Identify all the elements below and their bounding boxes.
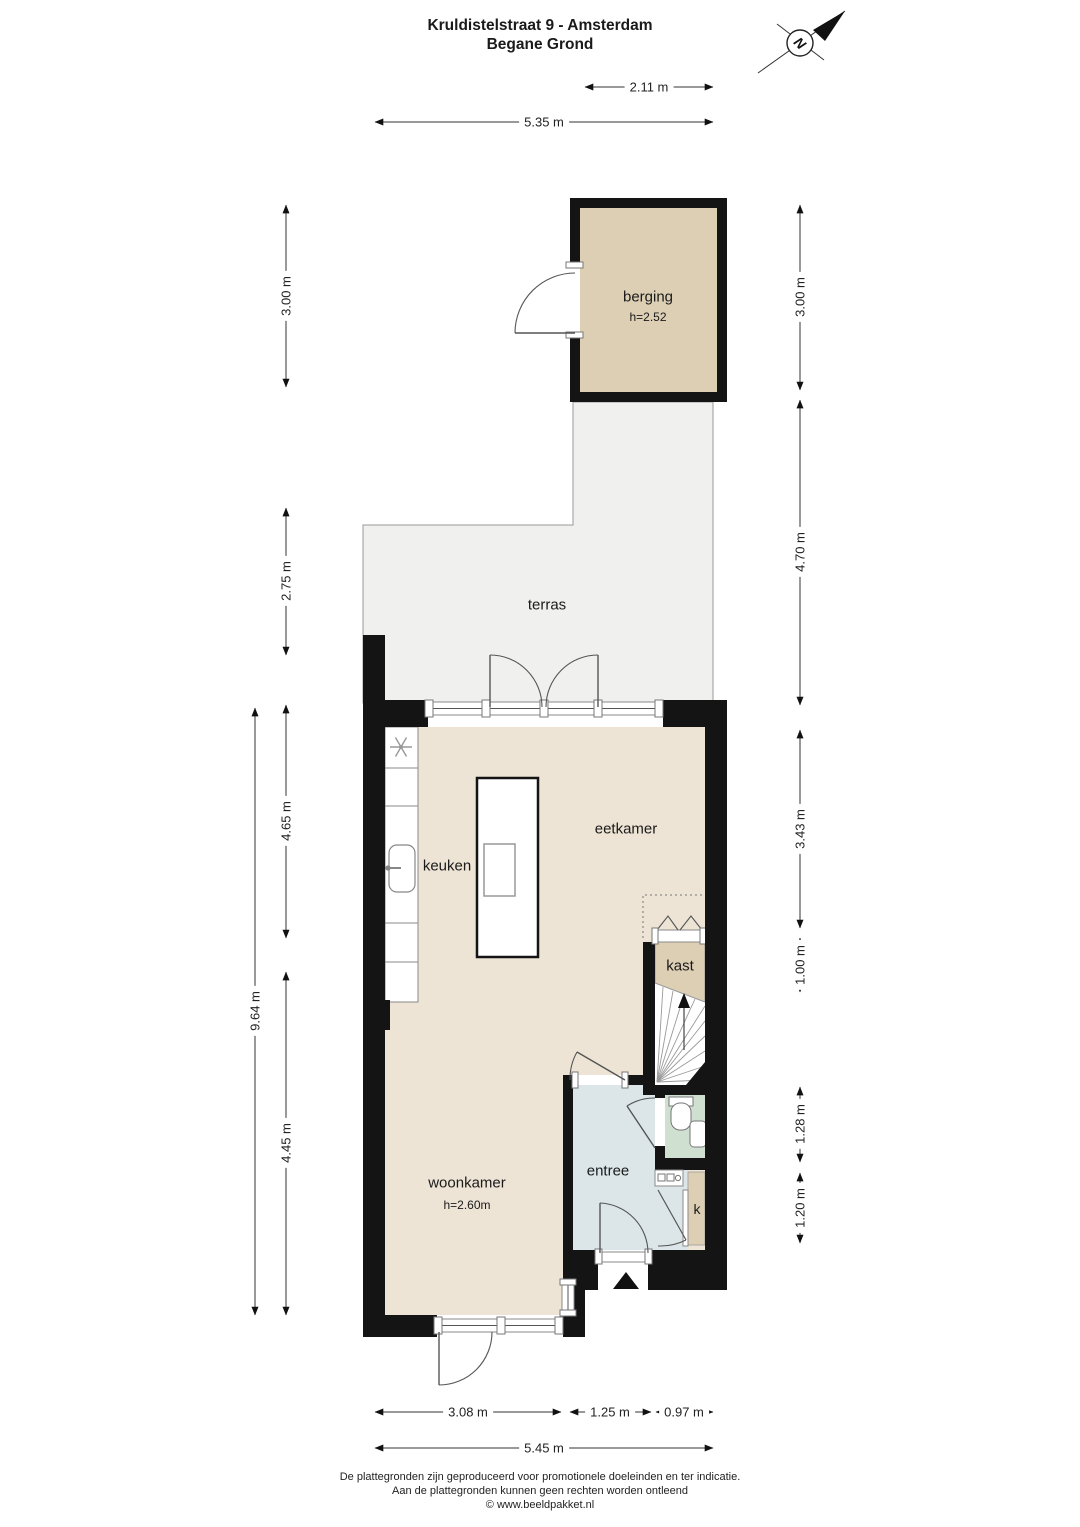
entrance-recess — [585, 1290, 727, 1318]
room-label-entree: entree — [587, 1163, 630, 1180]
room-label-terras: terras — [528, 597, 566, 614]
berging-structure — [515, 198, 727, 402]
room-label-kast: kast — [666, 958, 694, 975]
dim-top-1: 5.35 m — [519, 115, 569, 130]
room-label-berging: berging — [623, 289, 673, 306]
washbasin-icon — [690, 1121, 706, 1147]
room-label-woonkamer: woonkamer — [428, 1175, 506, 1192]
terras-area — [363, 402, 713, 703]
meter-cupboard — [655, 1170, 683, 1186]
dim-left-0: 3.00 m — [279, 271, 294, 321]
dim-left-4: 4.45 m — [279, 1118, 294, 1168]
page-title-line1: Kruldistelstraat 9 - Amsterdam — [427, 17, 652, 35]
dim-right-1: 4.70 m — [793, 527, 808, 577]
dim-right-3: 1.00 m — [793, 940, 808, 990]
footer-line-1: De plattegronden zijn geproduceerd voor … — [340, 1471, 741, 1483]
dim-right-2: 3.43 m — [793, 804, 808, 854]
dim-right-5: 1.20 m — [793, 1183, 808, 1233]
dim-bottom-0: 3.08 m — [443, 1405, 493, 1420]
footer-line-2: Aan de plattegronden kunnen geen rechten… — [392, 1485, 688, 1497]
dim-bottom-1: 1.25 m — [585, 1405, 635, 1420]
room-height-woonkamer: h=2.60m — [443, 1198, 490, 1212]
dim-left-1: 2.75 m — [279, 556, 294, 606]
dim-left-3: 9.64 m — [248, 986, 263, 1036]
front-window-band — [434, 1317, 563, 1385]
room-height-berging: h=2.52 — [629, 310, 666, 324]
dim-bottom-2: 0.97 m — [659, 1405, 709, 1420]
room-label-k: k — [694, 1201, 701, 1217]
kitchen-island — [477, 778, 538, 957]
floorplan-drawing: N — [0, 0, 1080, 1527]
floorplan-page: N — [0, 0, 1080, 1527]
page-title-line2: Begane Grond — [487, 36, 594, 54]
dim-left-2: 4.65 m — [279, 796, 294, 846]
front-garden-door — [439, 1332, 492, 1385]
rear-window-band — [425, 700, 663, 717]
compass-icon: N — [758, 11, 845, 73]
room-label-eetkamer: eetkamer — [595, 821, 658, 838]
toilet-icon — [669, 1097, 693, 1130]
side-window — [560, 1279, 576, 1316]
footer-line-3: © www.beeldpakket.nl — [486, 1499, 594, 1511]
dim-top-0: 2.11 m — [625, 80, 674, 95]
berging-door — [515, 273, 575, 333]
dim-right-0: 3.00 m — [793, 272, 808, 322]
dim-right-4: 1.28 m — [793, 1099, 808, 1149]
sink-icon — [385, 845, 415, 892]
kitchen-counter — [385, 727, 418, 1002]
dim-bottom-3: 5.45 m — [519, 1441, 569, 1456]
room-label-keuken: keuken — [423, 858, 471, 875]
